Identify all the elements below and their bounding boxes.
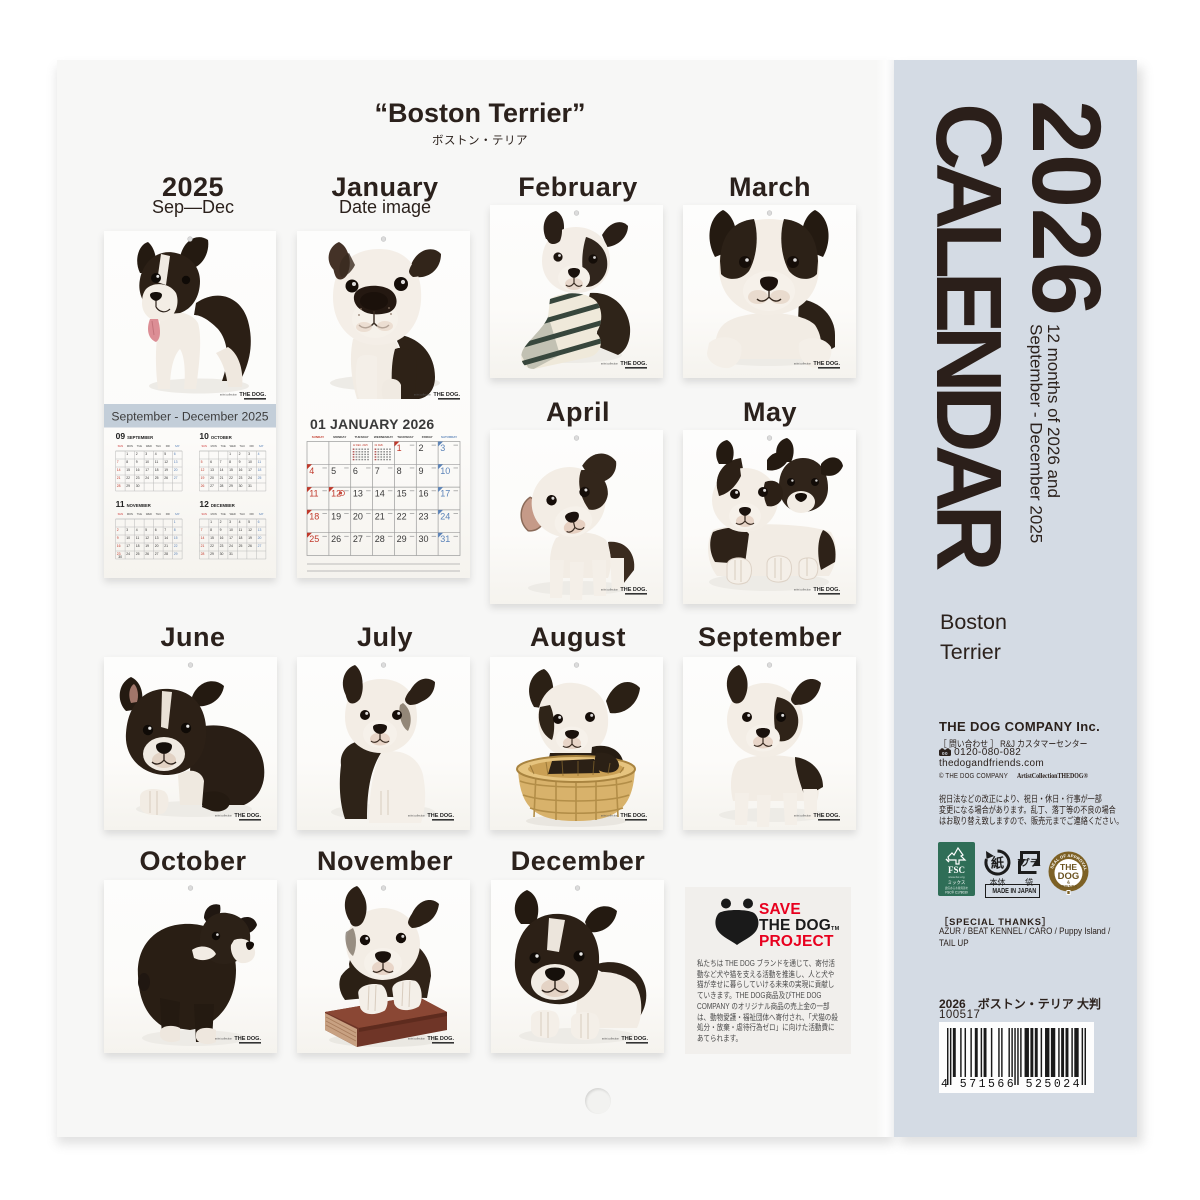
svg-text:9: 9 [136, 460, 138, 464]
svg-text:21: 21 [220, 476, 224, 480]
svg-text:THU: THU [156, 512, 161, 516]
svg-text:16: 16 [239, 468, 243, 472]
svg-text:2: 2 [419, 443, 424, 453]
svg-text:WED: WED [230, 444, 236, 448]
svg-text:30: 30 [136, 484, 140, 488]
svg-text:18: 18 [155, 468, 159, 472]
svg-text:7: 7 [201, 528, 203, 532]
svg-text:artist collection: artist collection [601, 362, 619, 366]
svg-text:6: 6 [174, 452, 176, 456]
svg-text:3: 3 [229, 520, 231, 524]
svg-text:7: 7 [220, 460, 222, 464]
svg-text:5: 5 [201, 460, 203, 464]
svg-text:16: 16 [419, 489, 429, 499]
svg-text:THE DOG.: THE DOG. [620, 361, 647, 367]
svg-text:4: 4 [136, 528, 138, 532]
svg-text:18: 18 [258, 468, 262, 472]
svg-text:artist collection: artist collection [215, 1037, 233, 1041]
svg-text:31: 31 [248, 484, 252, 488]
svg-text:26: 26 [164, 476, 168, 480]
svg-text:20: 20 [174, 468, 178, 472]
svg-text:14: 14 [164, 536, 168, 540]
svg-text:30: 30 [220, 552, 224, 556]
svg-text:FSC® C178030: FSC® C178030 [945, 891, 968, 895]
svg-text:13: 13 [210, 468, 214, 472]
svg-text:11: 11 [309, 489, 318, 499]
svg-text:4: 4 [239, 520, 241, 524]
svg-text:SUN: SUN [118, 444, 124, 448]
svg-text:8: 8 [229, 460, 231, 464]
svg-text:26: 26 [248, 544, 252, 548]
svg-text:1: 1 [174, 520, 176, 524]
svg-text:3: 3 [145, 452, 147, 456]
svg-text:20: 20 [155, 544, 159, 548]
svg-text:29: 29 [397, 534, 407, 544]
svg-text:THU: THU [240, 512, 245, 516]
svg-text:24: 24 [440, 511, 450, 521]
svg-text:artist collection: artist collection [408, 814, 426, 818]
svg-text:29: 29 [126, 484, 130, 488]
svg-text:13: 13 [174, 460, 178, 464]
svg-text:24: 24 [248, 476, 252, 480]
svg-text:SUNDAY: SUNDAY [312, 435, 324, 439]
svg-text:13: 13 [258, 528, 262, 532]
svg-text:THE DOG.: THE DOG. [813, 813, 840, 819]
svg-text:artist collection: artist collection [601, 588, 619, 592]
svg-text:MON: MON [211, 512, 217, 516]
svg-text:プラ: プラ [1020, 857, 1038, 868]
svg-text:11: 11 [239, 528, 243, 532]
svg-text:7: 7 [164, 528, 166, 532]
svg-text:13: 13 [155, 536, 159, 540]
svg-text:14: 14 [375, 489, 385, 499]
svg-text:17: 17 [145, 468, 149, 472]
svg-text:15: 15 [126, 468, 130, 472]
svg-text:27: 27 [174, 476, 178, 480]
svg-text:19: 19 [248, 536, 252, 540]
svg-text:12: 12 [248, 528, 252, 532]
svg-text:22: 22 [210, 544, 214, 548]
svg-text:1: 1 [126, 452, 128, 456]
svg-text:SAT: SAT [259, 444, 264, 448]
svg-text:27: 27 [210, 484, 214, 488]
svg-text:THE DOG.: THE DOG. [427, 813, 454, 819]
svg-text:18: 18 [136, 544, 140, 548]
svg-text:11NOVEMBER: 11NOVEMBER [116, 499, 151, 509]
svg-text:1: 1 [397, 443, 402, 453]
svg-text:SUN: SUN [201, 512, 207, 516]
svg-text:29: 29 [174, 552, 178, 556]
svg-text:9: 9 [239, 460, 241, 464]
svg-text:23: 23 [136, 476, 140, 480]
svg-text:30: 30 [419, 534, 429, 544]
svg-text:6: 6 [210, 460, 212, 464]
svg-text:00: 00 [942, 751, 948, 756]
svg-text:7: 7 [375, 466, 380, 476]
svg-text:02 FEB.: 02 FEB. [375, 444, 384, 447]
svg-text:THE DOG.: THE DOG. [427, 1036, 454, 1042]
svg-text:28: 28 [220, 484, 224, 488]
svg-text:21: 21 [117, 476, 121, 480]
svg-text:FRI: FRI [250, 444, 254, 448]
svg-text:31: 31 [229, 552, 233, 556]
svg-text:SATURDAY: SATURDAY [441, 435, 457, 439]
svg-text:23: 23 [220, 544, 224, 548]
svg-text:TUE: TUE [137, 444, 142, 448]
svg-text:THURSDAY: THURSDAY [397, 435, 413, 439]
svg-text:紙: 紙 [991, 856, 1004, 871]
svg-text:8: 8 [397, 466, 402, 476]
svg-text:artist collection: artist collection [794, 588, 812, 592]
svg-text:27: 27 [353, 534, 363, 544]
svg-text:WEDNESDAY: WEDNESDAY [374, 435, 393, 439]
svg-text:3: 3 [126, 528, 128, 532]
svg-text:22: 22 [174, 544, 178, 548]
svg-text:17: 17 [126, 544, 130, 548]
svg-text:25: 25 [258, 476, 262, 480]
svg-text:PROJECT: PROJECT [759, 933, 834, 950]
svg-text:artist collection: artist collection [414, 393, 432, 397]
svg-text:4: 4 [258, 452, 260, 456]
svg-text:12: 12 [145, 536, 149, 540]
svg-text:SUN: SUN [118, 512, 124, 516]
svg-text:20: 20 [210, 476, 214, 480]
svg-text:28: 28 [375, 534, 385, 544]
svg-text:15: 15 [174, 536, 178, 540]
svg-text:17: 17 [229, 536, 233, 540]
svg-text:22: 22 [397, 511, 407, 521]
svg-text:WED: WED [146, 444, 152, 448]
svg-text:THU: THU [240, 444, 245, 448]
svg-text:5: 5 [164, 452, 166, 456]
svg-text:9: 9 [419, 466, 424, 476]
svg-text:MONDAY: MONDAY [333, 435, 346, 439]
svg-text:27: 27 [155, 552, 159, 556]
svg-text:16: 16 [136, 468, 140, 472]
svg-text:17: 17 [248, 468, 252, 472]
svg-text:6: 6 [258, 520, 260, 524]
svg-text:artist collection: artist collection [601, 814, 619, 818]
svg-text:FRI: FRI [250, 512, 254, 516]
svg-text:19: 19 [164, 468, 168, 472]
svg-text:26: 26 [145, 552, 149, 556]
svg-text:2: 2 [239, 452, 241, 456]
svg-text:8: 8 [210, 528, 212, 532]
svg-text:31: 31 [440, 534, 450, 544]
svg-text:11: 11 [155, 460, 159, 464]
svg-text:September - December 2025: September - December 2025 [111, 410, 268, 424]
svg-text:THE DOG.: THE DOG. [621, 1036, 648, 1042]
svg-text:THE DOG.: THE DOG. [239, 392, 266, 398]
svg-text:25: 25 [155, 476, 159, 480]
svg-text:WED: WED [230, 512, 236, 516]
svg-text:10: 10 [440, 466, 450, 476]
svg-text:10: 10 [126, 536, 130, 540]
svg-text:TUESDAY: TUESDAY [355, 435, 369, 439]
svg-text:20: 20 [353, 511, 363, 521]
svg-text:SAT: SAT [175, 444, 180, 448]
svg-text:12 DEC. 2025: 12 DEC. 2025 [353, 444, 369, 447]
svg-text:THE DOG.: THE DOG. [234, 813, 261, 819]
svg-text:12: 12 [201, 468, 205, 472]
svg-text:FRI: FRI [166, 444, 170, 448]
svg-text:10: 10 [248, 460, 252, 464]
svg-text:5: 5 [145, 528, 147, 532]
svg-text:artist collection: artist collection [215, 814, 233, 818]
svg-text:12: 12 [164, 460, 168, 464]
svg-text:THU: THU [156, 444, 161, 448]
svg-text:FRIDAY: FRIDAY [422, 435, 433, 439]
svg-text:30: 30 [239, 484, 243, 488]
svg-text:THE DOG.: THE DOG. [813, 587, 840, 593]
svg-text:15: 15 [397, 489, 407, 499]
svg-text:16: 16 [220, 536, 224, 540]
svg-text:14: 14 [220, 468, 224, 472]
svg-text:15: 15 [229, 468, 233, 472]
svg-text:5: 5 [331, 466, 336, 476]
svg-text:16: 16 [117, 544, 121, 548]
svg-text:TUE: TUE [137, 512, 142, 516]
svg-text:FSC: FSC [948, 865, 965, 875]
svg-text:24: 24 [145, 476, 149, 480]
svg-text:21: 21 [201, 544, 205, 548]
svg-text:11: 11 [136, 536, 140, 540]
svg-text:THE DOG.: THE DOG. [433, 392, 460, 398]
svg-text:14: 14 [117, 468, 121, 472]
svg-text:FRI: FRI [166, 512, 170, 516]
svg-text:MON: MON [127, 512, 133, 516]
svg-text:9: 9 [117, 536, 119, 540]
svg-text:FRIENDS: FRIENDS [1060, 885, 1078, 889]
svg-text:2: 2 [117, 528, 119, 532]
svg-text:5: 5 [248, 520, 250, 524]
svg-text:THE DOGTM: THE DOGTM [759, 917, 840, 934]
svg-text:artist collection: artist collection [408, 1037, 426, 1041]
svg-text:26: 26 [201, 484, 205, 488]
svg-text:SAT: SAT [259, 512, 264, 516]
svg-text:15: 15 [210, 536, 214, 540]
svg-text:artist collection: artist collection [220, 393, 238, 397]
svg-text:19: 19 [145, 544, 149, 548]
svg-text:29: 29 [229, 484, 233, 488]
svg-text:1: 1 [229, 452, 231, 456]
svg-text:4: 4 [155, 452, 157, 456]
svg-text:22: 22 [229, 476, 233, 480]
svg-text:18: 18 [239, 536, 243, 540]
svg-text:THE DOG.: THE DOG. [620, 587, 647, 593]
svg-text:SUN: SUN [201, 444, 207, 448]
svg-text:2: 2 [220, 520, 222, 524]
svg-text:26: 26 [331, 534, 341, 544]
svg-text:artist collection: artist collection [602, 1037, 620, 1041]
svg-text:9: 9 [220, 528, 222, 532]
svg-text:22: 22 [126, 476, 130, 480]
svg-text:6: 6 [353, 466, 358, 476]
svg-text:24: 24 [229, 544, 233, 548]
svg-text:30: 30 [118, 555, 122, 559]
svg-text:24: 24 [126, 552, 130, 556]
svg-text:10: 10 [229, 528, 233, 532]
svg-text:TUE: TUE [221, 444, 226, 448]
svg-text:09SEPTEMBER: 09SEPTEMBER [116, 431, 154, 441]
svg-text:WED: WED [146, 512, 152, 516]
svg-text:27: 27 [258, 544, 262, 548]
svg-text:MON: MON [211, 444, 217, 448]
svg-text:8: 8 [174, 528, 176, 532]
svg-text:SAT: SAT [175, 512, 180, 516]
svg-text:7: 7 [117, 460, 119, 464]
svg-text:責任ある木質資源を: 責任ある木質資源を [945, 886, 969, 890]
svg-text:21: 21 [164, 544, 168, 548]
svg-text:25: 25 [239, 544, 243, 548]
svg-text:3: 3 [440, 443, 445, 453]
svg-text:18: 18 [309, 511, 319, 521]
svg-text:THE DOG.: THE DOG. [234, 1036, 261, 1042]
svg-text:6: 6 [155, 528, 157, 532]
svg-text:10: 10 [145, 460, 149, 464]
svg-text:25: 25 [309, 534, 319, 544]
svg-text:www.fsc.org: www.fsc.org [948, 875, 965, 879]
svg-text:28: 28 [117, 484, 121, 488]
svg-text:2: 2 [136, 452, 138, 456]
svg-text:21: 21 [375, 511, 385, 521]
svg-text:28: 28 [164, 552, 168, 556]
svg-text:1: 1 [210, 520, 212, 524]
svg-text:3: 3 [248, 452, 250, 456]
svg-text:29: 29 [210, 552, 214, 556]
svg-text:THE DOG.: THE DOG. [813, 361, 840, 367]
svg-text:23: 23 [239, 476, 243, 480]
svg-text:10OCTOBER: 10OCTOBER [199, 431, 231, 441]
svg-text:artist collection: artist collection [794, 362, 812, 366]
svg-text:4: 4 [309, 466, 314, 476]
svg-text:23: 23 [419, 511, 429, 521]
svg-text:11: 11 [258, 460, 262, 464]
svg-text:01 JANUARY 2026: 01 JANUARY 2026 [310, 416, 434, 432]
svg-text:SAVE: SAVE [759, 901, 801, 918]
svg-text:14: 14 [201, 536, 205, 540]
svg-text:MON: MON [127, 444, 133, 448]
svg-text:12DECEMBER: 12DECEMBER [199, 499, 234, 509]
svg-text:TUE: TUE [221, 512, 226, 516]
svg-text:19: 19 [201, 476, 205, 480]
svg-text:THE DOG.: THE DOG. [620, 813, 647, 819]
svg-text:20: 20 [258, 536, 262, 540]
svg-text:25: 25 [136, 552, 140, 556]
svg-text:28: 28 [201, 552, 205, 556]
svg-text:artist collection: artist collection [794, 814, 812, 818]
svg-text:13: 13 [353, 489, 363, 499]
svg-text:8: 8 [126, 460, 128, 464]
svg-text:19: 19 [331, 511, 341, 521]
svg-text:17: 17 [440, 489, 450, 499]
